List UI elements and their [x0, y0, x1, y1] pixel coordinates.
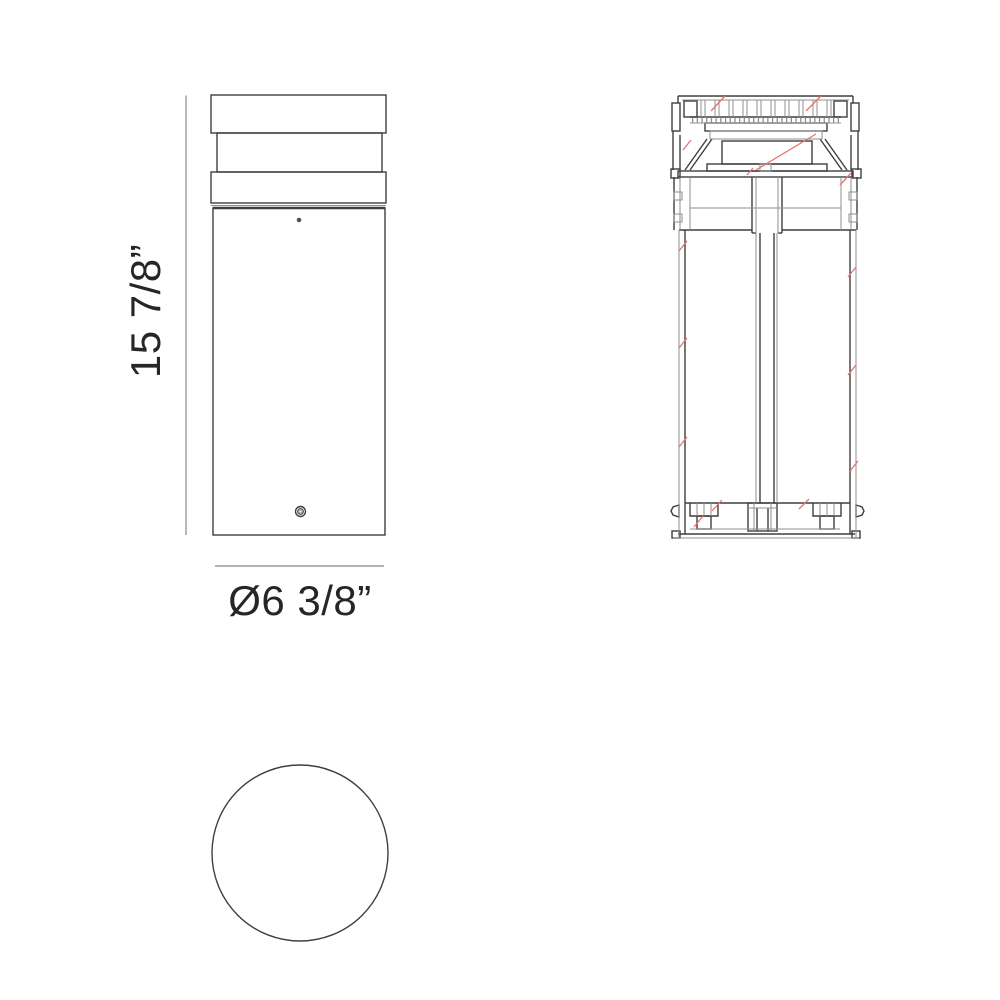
section-side-screw-left — [671, 505, 679, 517]
diameter-dimension-label: Ø6 3/8” — [228, 577, 372, 624]
height-dimension-label: 15 7/8” — [122, 244, 169, 378]
section-heatsink-fins — [701, 100, 831, 117]
section-view — [671, 96, 864, 538]
front-light-lines — [211, 206, 386, 514]
front-pilot-hole — [297, 218, 301, 222]
front-lens-band — [217, 133, 382, 172]
front-cap — [211, 95, 386, 133]
drawing-canvas: 15 7/8” — [0, 0, 1000, 1000]
front-pilot-hole-center — [298, 219, 299, 220]
section-cap — [671, 96, 861, 178]
section-hatch-marks — [679, 96, 858, 527]
front-body — [213, 208, 385, 535]
top-view-circle — [212, 765, 388, 941]
front-elevation-view — [211, 95, 386, 535]
top-view — [212, 765, 388, 941]
section-neck — [674, 177, 857, 233]
technical-drawing: 15 7/8” — [0, 0, 1000, 1000]
section-light-lines — [673, 100, 859, 538]
front-lower-band — [211, 172, 386, 203]
front-set-screw — [296, 507, 306, 517]
section-side-screw-right — [856, 505, 864, 517]
section-cable-connector — [748, 503, 777, 531]
section-walls — [685, 230, 850, 534]
